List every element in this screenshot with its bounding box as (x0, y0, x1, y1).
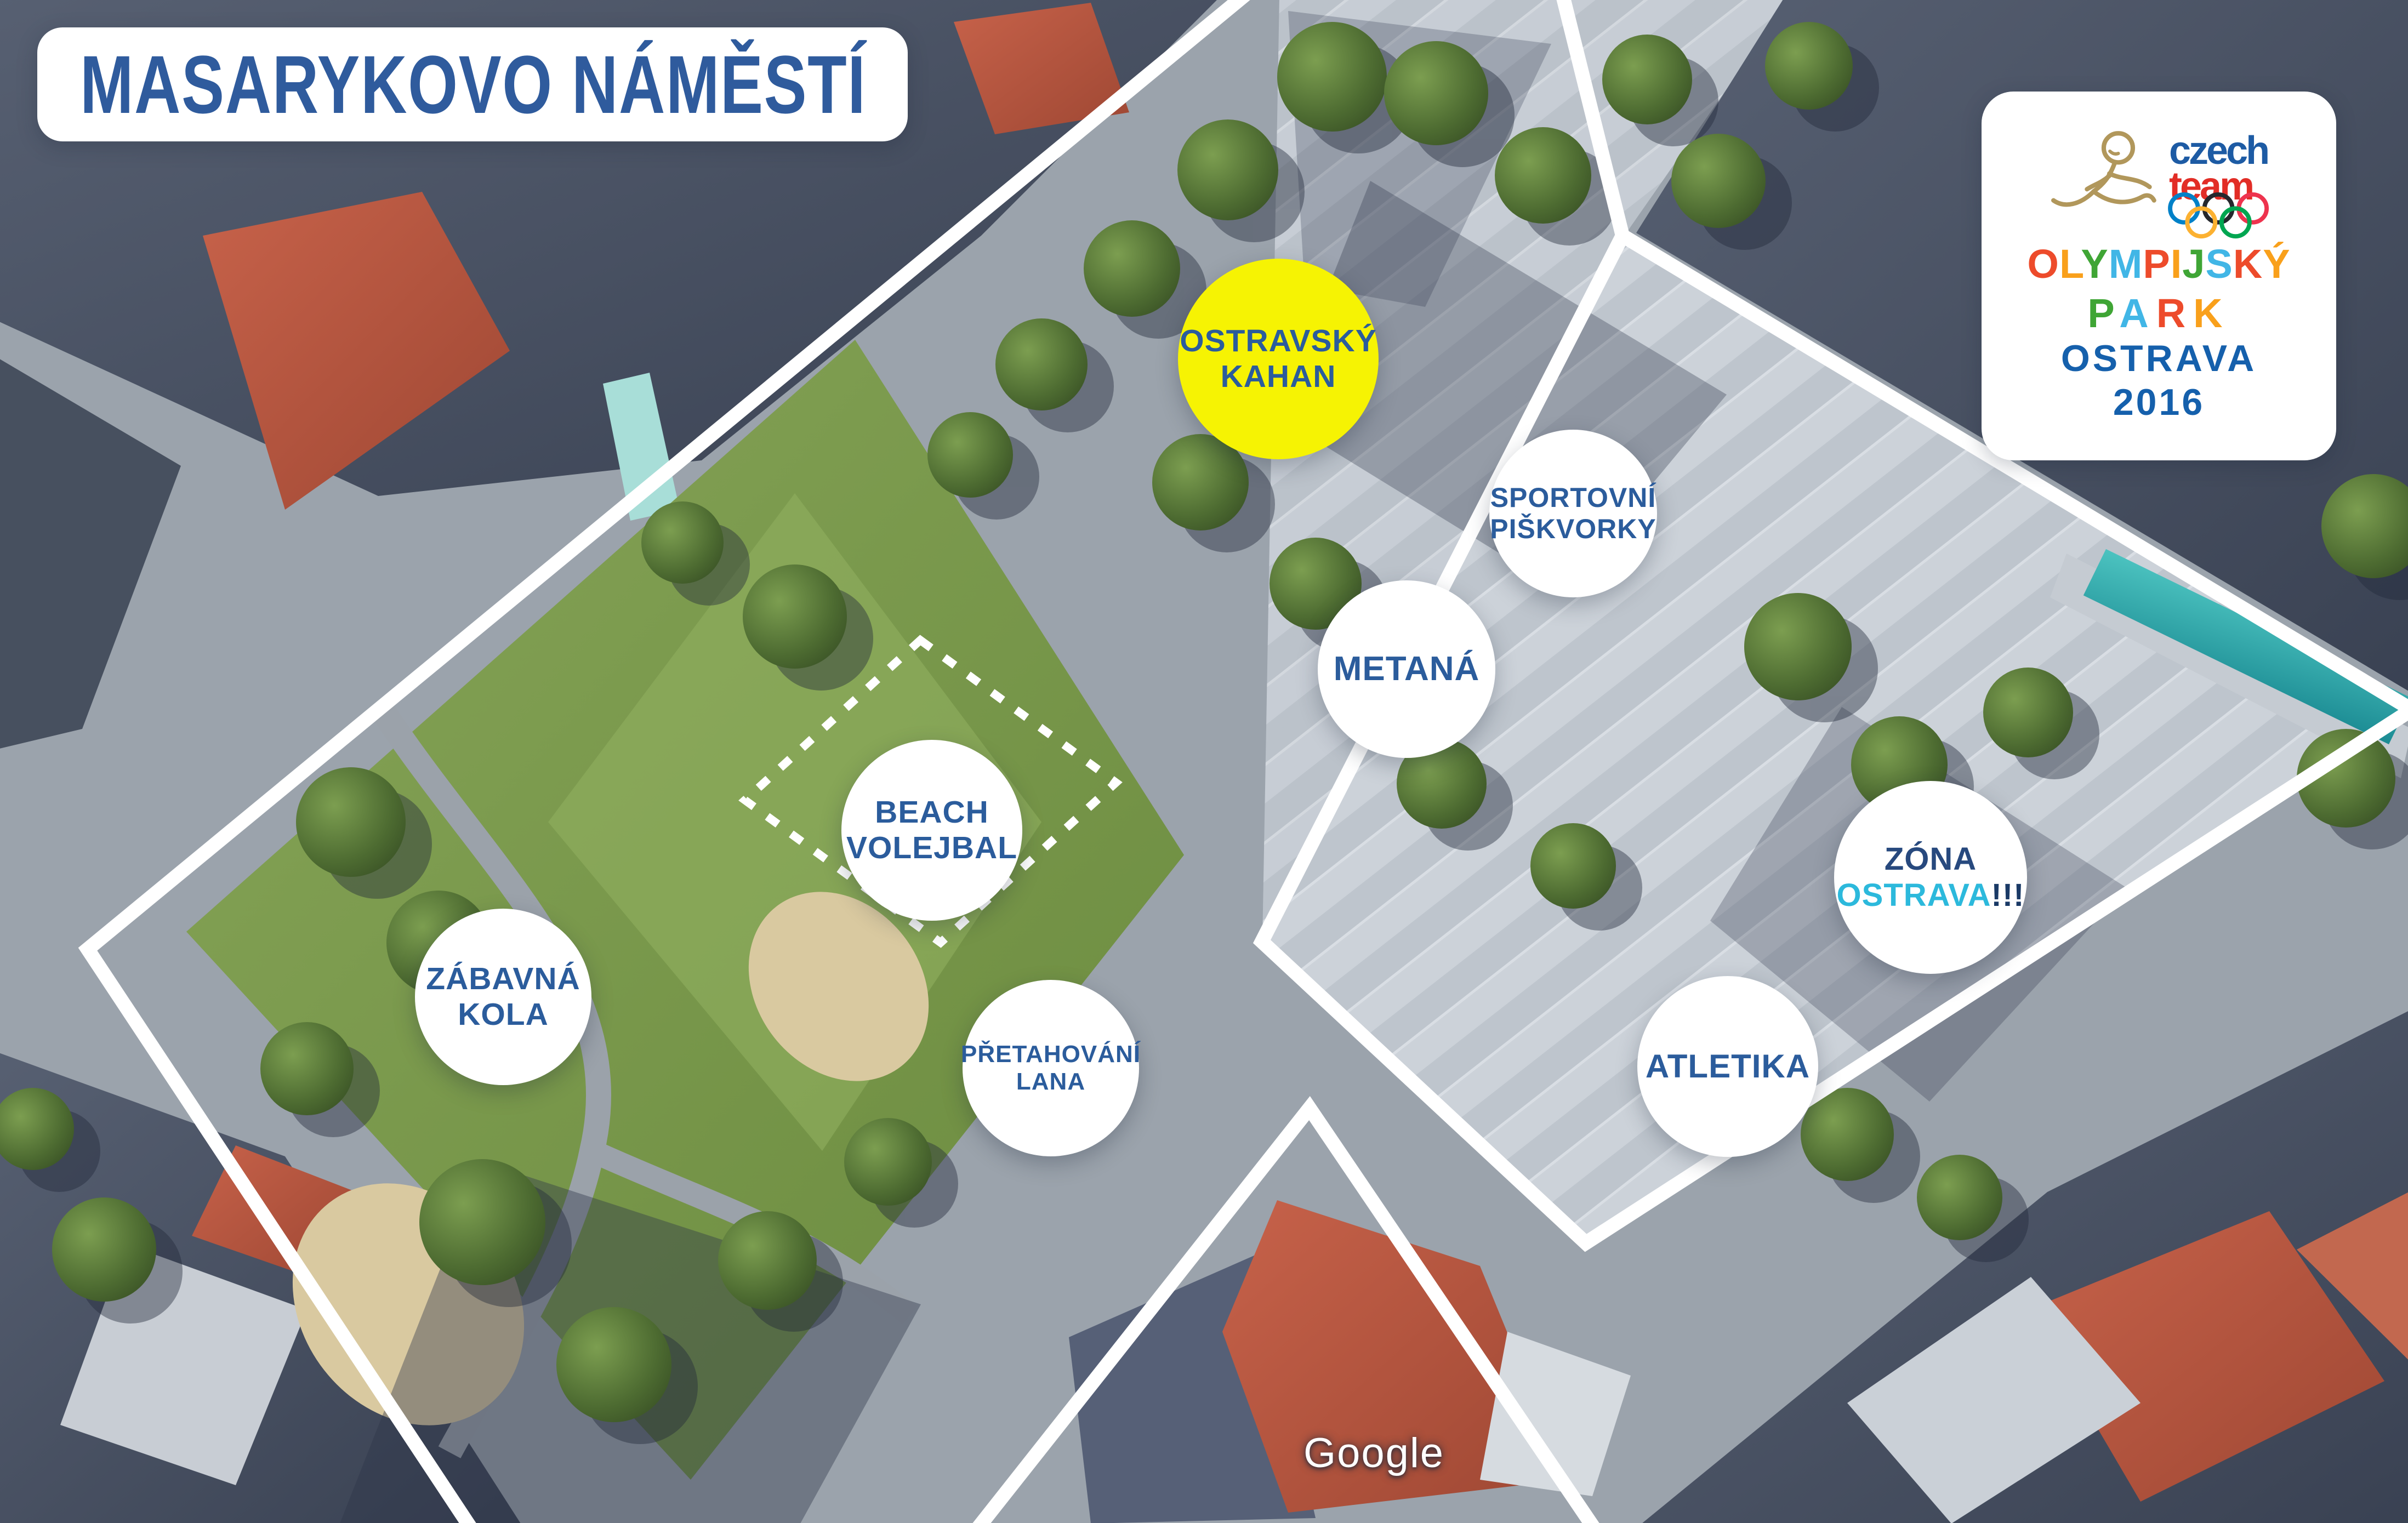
zone-badge-beach-volejbal[interactable]: BEACHVOLEJBAL (841, 740, 1022, 921)
runner-icon (2046, 127, 2165, 238)
zone-badge-ostravsky-kahan[interactable]: OSTRAVSKÝKAHAN (1178, 259, 1379, 459)
zone-label-text: VOLEJBAL (846, 830, 1017, 865)
zone-label-line: METANÁ (1334, 650, 1480, 689)
logo-letter: A (2119, 290, 2156, 336)
zone-label-text: ATLETIKA (1646, 1048, 1810, 1085)
czech-wordmark-czech: czech (2169, 133, 2268, 169)
title-card: MASARYKOVO NÁMĚSTÍ (37, 27, 908, 141)
zone-badge-metana[interactable]: METANÁ (1318, 580, 1495, 758)
zone-label-line: KAHAN (1221, 359, 1336, 395)
zone-badge-sportovni-piskvorky[interactable]: SPORTOVNÍPIŠKVORKY (1489, 430, 1657, 597)
logo-letter: S (2205, 241, 2233, 287)
logo-word-park: PARK (1982, 290, 2336, 336)
zone-label-text: OSTRAVSKÝ (1180, 323, 1377, 358)
logo-letter: R (2156, 290, 2193, 336)
zone-label-text: ZÓNA (1885, 841, 1977, 877)
page-title: MASARYKOVO NÁMĚSTÍ (80, 37, 866, 132)
logo-letter: I (2171, 241, 2183, 287)
zone-label-text: ZÁBAVNÁ (426, 961, 580, 996)
zone-badge-atletika[interactable]: ATLETIKA (1637, 976, 1818, 1157)
logo-letter: L (2059, 241, 2081, 287)
zone-label-text: SPORTOVNÍ (1490, 482, 1656, 513)
logo-letter: P (2087, 290, 2119, 336)
olympic-logo-card: czech team OLYMPIJSKÝ PARK OSTRAVA 2016 (1982, 92, 2336, 460)
zone-label-text: PIŠKVORKY (1490, 514, 1656, 544)
logo-letter: J (2182, 241, 2205, 287)
zone-label-line: ATLETIKA (1646, 1048, 1810, 1085)
zone-badge-pretahovani-lana[interactable]: PŘETAHOVÁNÍLANA (963, 980, 1139, 1156)
zone-label-line: LANA (1016, 1068, 1085, 1096)
zone-label-text: OSTRAVA (1837, 877, 1991, 913)
zone-label-line: PIŠKVORKY (1490, 514, 1656, 545)
zone-label-line: VOLEJBAL (846, 830, 1017, 866)
logo-letter: Ý (2263, 241, 2290, 287)
logo-letter: M (2109, 241, 2143, 287)
logo-letter: P (2143, 241, 2170, 287)
logo-letter: K (2193, 290, 2230, 336)
logo-word-ostrava: OSTRAVA (1982, 337, 2336, 380)
zone-label-line: OSTRAVSKÝ (1180, 323, 1377, 359)
olympic-rings-icon (2167, 191, 2274, 241)
logo-letter: Y (2081, 241, 2108, 287)
zone-label-line: SPORTOVNÍ (1490, 482, 1656, 514)
zone-label-text: LANA (1016, 1068, 1085, 1095)
poster-stage: OSTRAVSKÝKAHANSPORTOVNÍPIŠKVORKYMETANÁBE… (0, 0, 2408, 1523)
zone-badge-zabavna-kola[interactable]: ZÁBAVNÁKOLA (415, 909, 591, 1085)
zone-label-line: ZÁBAVNÁ (426, 961, 580, 997)
logo-letter: K (2233, 241, 2263, 287)
zone-label-line: KOLA (458, 997, 548, 1033)
logo-word-olympijsky: OLYMPIJSKÝ (1982, 241, 2336, 287)
zone-label-line: ZÓNA (1885, 841, 1977, 877)
zone-label-line: OSTRAVA!!! (1837, 877, 2025, 914)
zone-label-text: PŘETAHOVÁNÍ (961, 1041, 1141, 1068)
zone-label-text: KOLA (458, 997, 548, 1032)
zone-label-text: KAHAN (1221, 359, 1336, 394)
zone-label-text: BEACH (875, 795, 989, 830)
logo-letter: O (2027, 241, 2059, 287)
google-watermark: Google (1303, 1429, 1444, 1477)
zone-label-text: !!! (1991, 877, 2025, 913)
zone-label-text: METANÁ (1334, 650, 1480, 688)
zone-label-line: BEACH (875, 795, 989, 830)
zone-label-line: PŘETAHOVÁNÍ (961, 1041, 1141, 1068)
logo-word-year: 2016 (1982, 381, 2336, 424)
zone-badge-zona-ostrava[interactable]: ZÓNAOSTRAVA!!! (1834, 781, 2027, 974)
